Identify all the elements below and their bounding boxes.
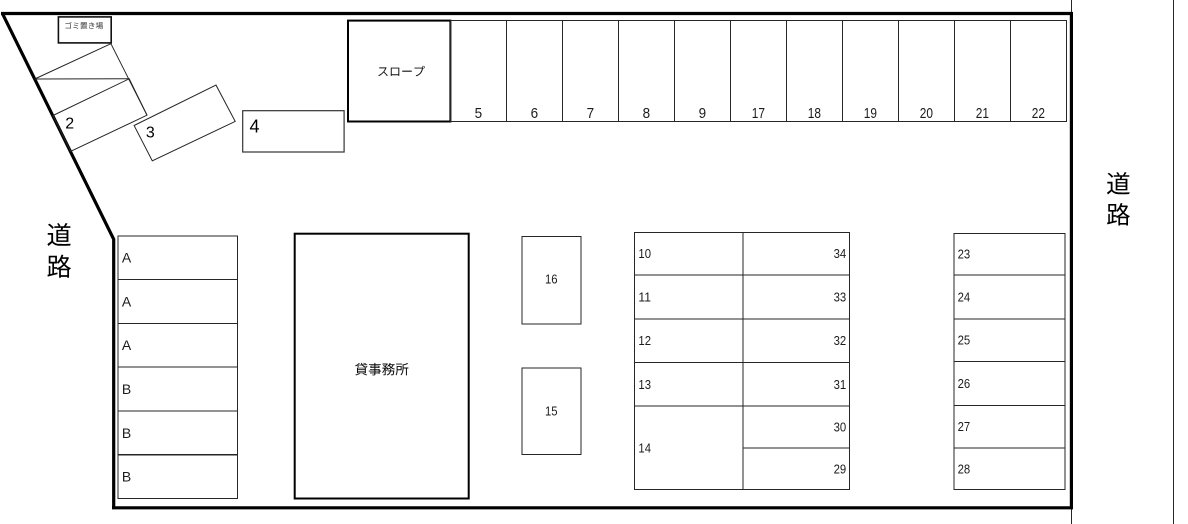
svg-text:A: A [122, 337, 132, 353]
svg-text:8: 8 [643, 105, 651, 122]
svg-text:32: 32 [834, 333, 847, 348]
svg-text:26: 26 [958, 376, 971, 391]
svg-text:6: 6 [531, 105, 539, 122]
svg-text:11: 11 [638, 289, 651, 304]
svg-text:15: 15 [545, 404, 558, 419]
svg-text:14: 14 [638, 440, 651, 455]
svg-text:B: B [122, 425, 131, 441]
svg-text:B: B [122, 469, 131, 485]
svg-text:13: 13 [638, 377, 651, 392]
svg-text:12: 12 [638, 333, 651, 348]
svg-text:A: A [122, 250, 132, 266]
svg-text:B: B [122, 381, 131, 397]
svg-text:7: 7 [587, 105, 595, 122]
svg-text:9: 9 [699, 105, 707, 122]
svg-text:27: 27 [958, 419, 971, 434]
svg-text:19: 19 [864, 105, 877, 122]
svg-text:24: 24 [958, 289, 971, 304]
svg-text:21: 21 [976, 105, 989, 122]
svg-text:31: 31 [834, 377, 847, 392]
svg-text:2: 2 [65, 116, 74, 133]
svg-text:A: A [122, 293, 132, 309]
svg-text:33: 33 [834, 289, 847, 304]
svg-text:23: 23 [958, 247, 971, 262]
svg-text:18: 18 [808, 105, 821, 122]
svg-text:5: 5 [475, 105, 483, 122]
svg-text:29: 29 [834, 461, 847, 476]
svg-text:28: 28 [958, 461, 971, 476]
svg-text:25: 25 [958, 333, 971, 348]
svg-text:34: 34 [834, 246, 847, 261]
svg-text:4: 4 [250, 117, 260, 137]
svg-text:17: 17 [752, 105, 765, 122]
svg-text:20: 20 [920, 105, 933, 122]
svg-text:10: 10 [638, 246, 651, 261]
svg-text:3: 3 [146, 125, 155, 142]
svg-text:16: 16 [545, 272, 558, 287]
svg-text:22: 22 [1032, 105, 1045, 122]
svg-text:30: 30 [834, 420, 847, 435]
